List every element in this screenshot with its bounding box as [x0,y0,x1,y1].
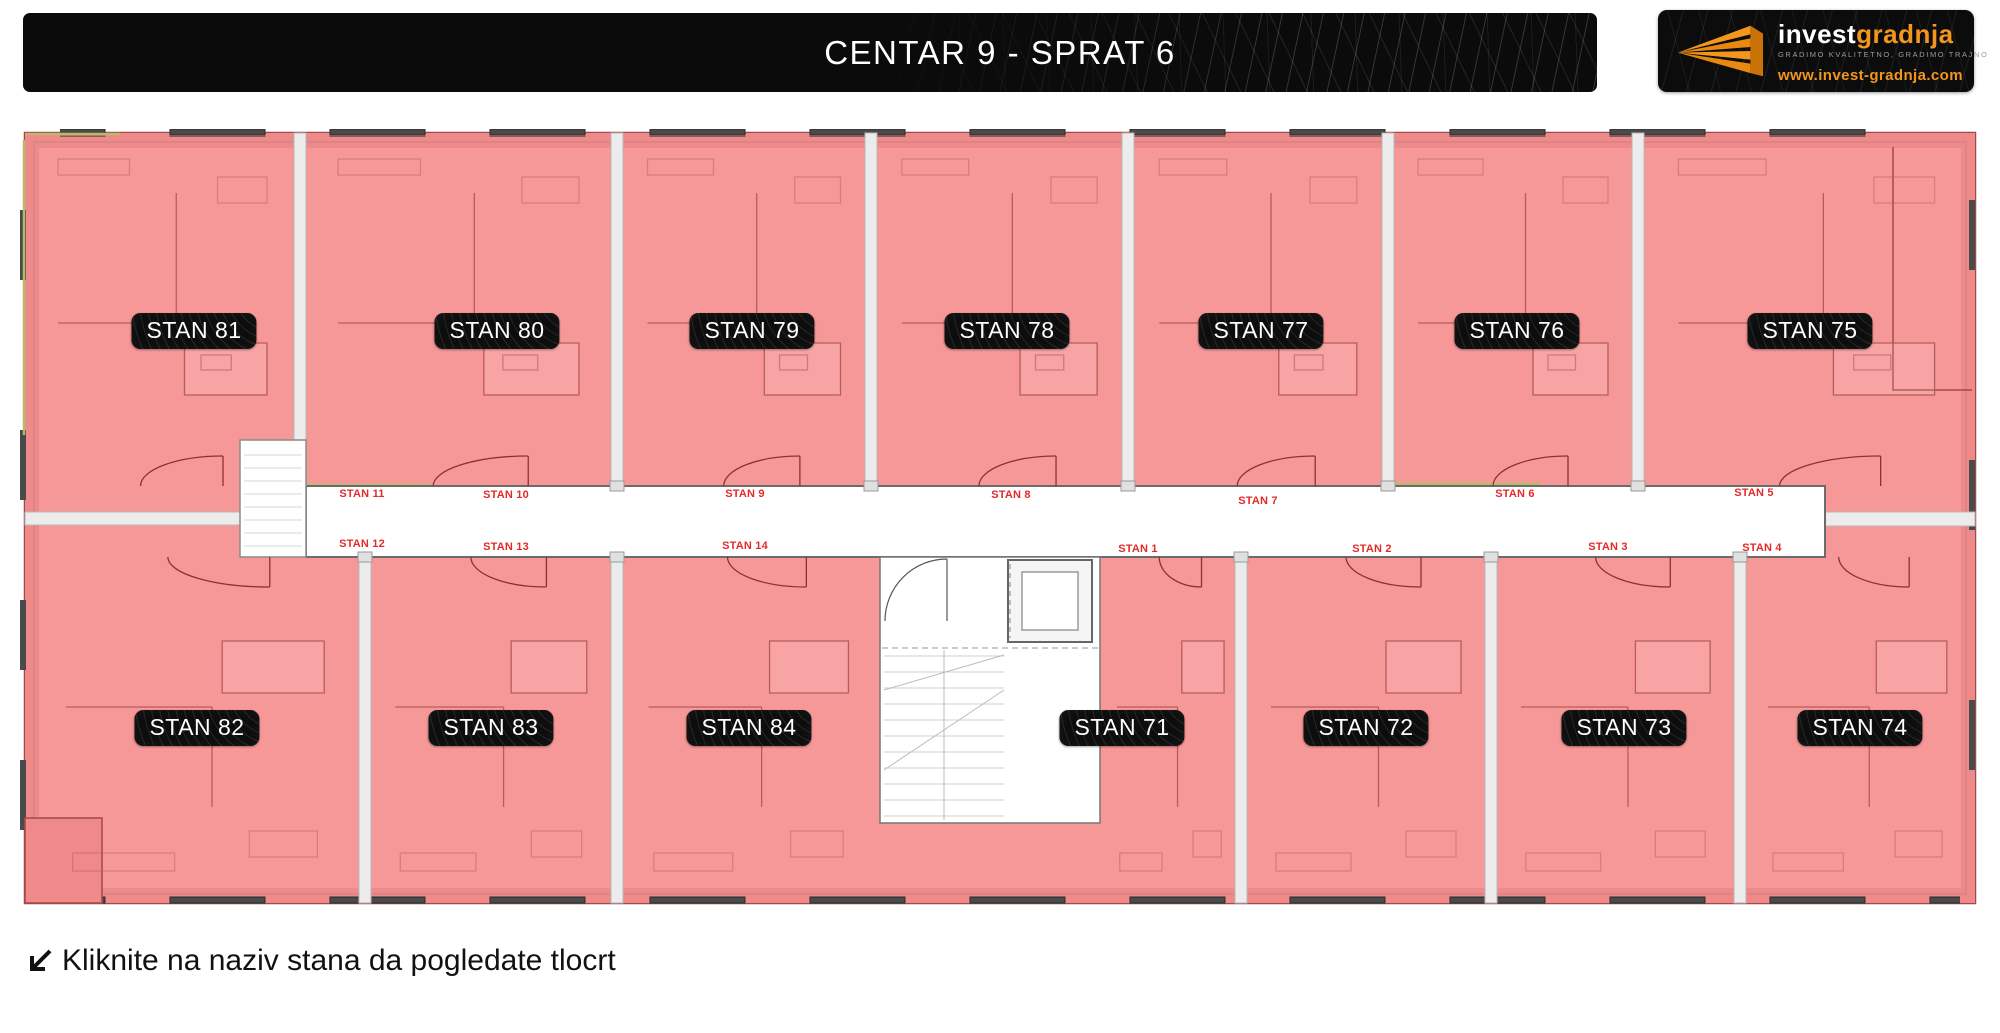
elevator [1008,560,1092,642]
logo-wordmark: investgradnja [1778,21,1988,48]
stairwell [880,557,1100,823]
corridor-unit-label-stan-14: STAN 14 [722,540,768,552]
floorplan-drawing [0,0,2000,1028]
company-logo-panel[interactable]: investgradnja GRADIMO KVALITETNO, GRADIM… [1658,10,1974,92]
corridor-unit-label-stan-8: STAN 8 [991,489,1031,501]
header-mesh-decoration [873,13,1597,92]
corridor-unit-label-stan-2: STAN 2 [1352,543,1392,555]
apartment-label-stan-81[interactable]: STAN 81 [131,313,256,349]
footer-instruction-text: Kliknite na naziv stana da pogledate tlo… [62,944,616,978]
corridor-unit-label-stan-1: STAN 1 [1118,543,1158,555]
apartment-label-stan-77[interactable]: STAN 77 [1198,313,1323,349]
logo-website-link[interactable]: www.invest-gradnja.com [1778,68,1988,84]
logo-word-gradnja: gradnja [1856,19,1953,49]
corridor-unit-label-stan-9: STAN 9 [725,488,765,500]
apartment-label-stan-79[interactable]: STAN 79 [689,313,814,349]
apartment-label-stan-73[interactable]: STAN 73 [1561,710,1686,746]
corridor-unit-label-stan-3: STAN 3 [1588,541,1628,553]
header-bar [23,13,1597,92]
footer-instruction: Kliknite na naziv stana da pogledate tlo… [24,944,616,978]
apartment-label-stan-72[interactable]: STAN 72 [1303,710,1428,746]
apartment-label-stan-74[interactable]: STAN 74 [1797,710,1922,746]
invest-gradnja-logo-icon [1674,21,1770,81]
logo-tagline: GRADIMO KVALITETNO, GRADIMO TRAJNO [1778,51,1988,59]
apartment-label-stan-82[interactable]: STAN 82 [134,710,259,746]
apartment-label-stan-83[interactable]: STAN 83 [428,710,553,746]
apartment-label-stan-84[interactable]: STAN 84 [686,710,811,746]
corridor-unit-label-stan-7: STAN 7 [1238,495,1278,507]
apartment-label-stan-76[interactable]: STAN 76 [1454,313,1579,349]
corridor-unit-label-stan-10: STAN 10 [483,489,529,501]
logo-text-block: investgradnja GRADIMO KVALITETNO, GRADIM… [1778,21,1988,84]
floorplan-svg [0,0,2000,1028]
logo-word-invest: invest [1778,19,1856,49]
corridor-unit-label-stan-13: STAN 13 [483,541,529,553]
corridor-unit-label-stan-11: STAN 11 [339,488,384,500]
apartment-label-stan-78[interactable]: STAN 78 [944,313,1069,349]
corridor-unit-label-stan-12: STAN 12 [339,538,385,550]
apartment-label-stan-75[interactable]: STAN 75 [1747,313,1872,349]
arrow-down-left-icon [24,945,56,977]
corridor-unit-label-stan-5: STAN 5 [1734,487,1774,499]
corridor-unit-label-stan-6: STAN 6 [1495,488,1535,500]
apartment-label-stan-71[interactable]: STAN 71 [1059,710,1184,746]
corridor-unit-label-stan-4: STAN 4 [1742,542,1782,554]
apartment-label-stan-80[interactable]: STAN 80 [434,313,559,349]
